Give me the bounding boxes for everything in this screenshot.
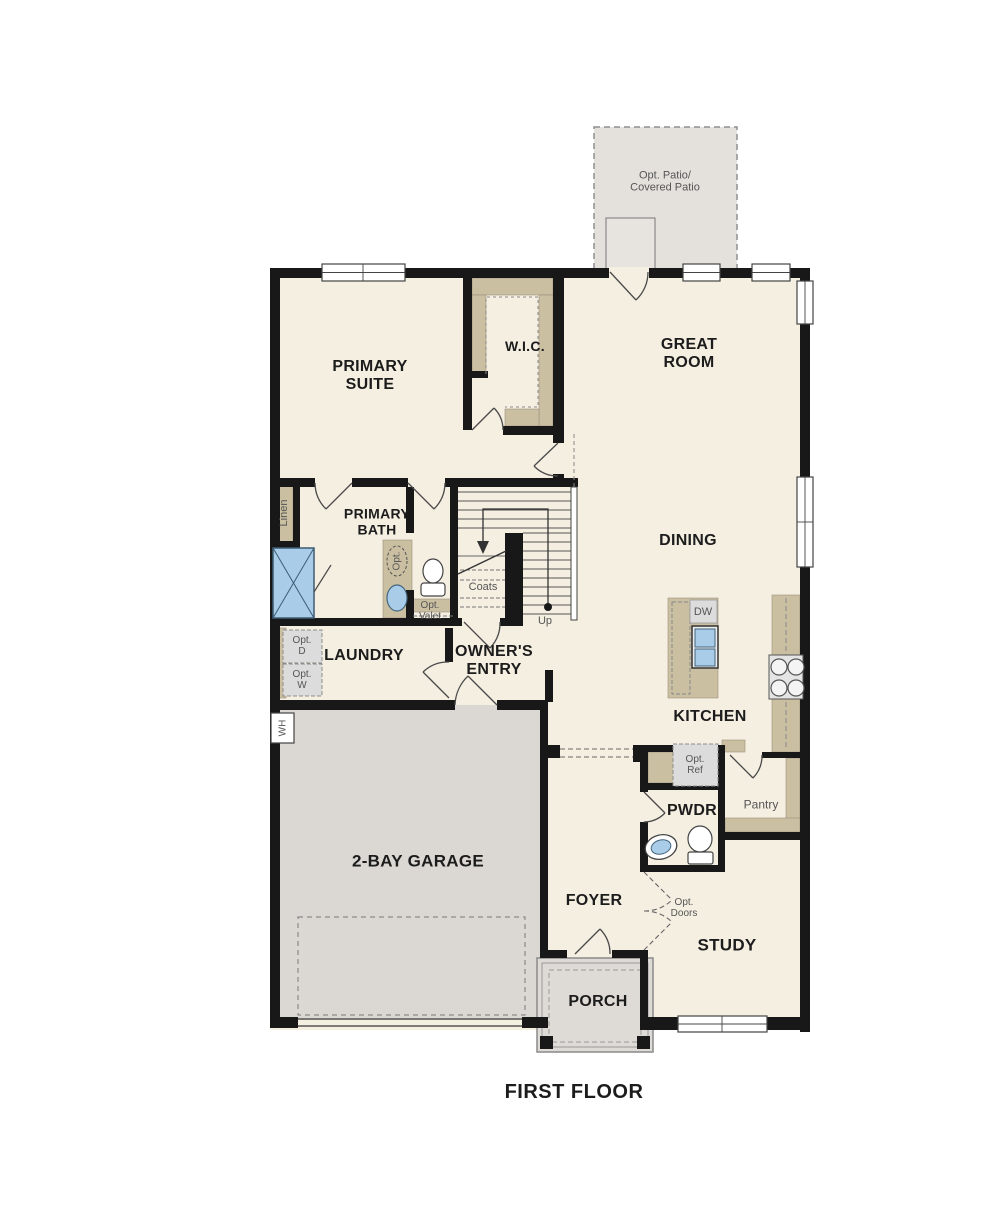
patio-area	[594, 127, 737, 275]
floorplan-drawing	[0, 0, 1000, 1216]
floor-plan: Opt. Patio/ Covered Patio PRIMARY SUITE …	[0, 0, 1000, 1216]
washer-dryer-opt	[283, 630, 322, 696]
porch-structure	[537, 958, 653, 1052]
water-heater	[271, 713, 294, 743]
bath-toilet	[421, 559, 445, 596]
garage-floor	[280, 705, 542, 1020]
opt-ref-box	[673, 744, 718, 786]
